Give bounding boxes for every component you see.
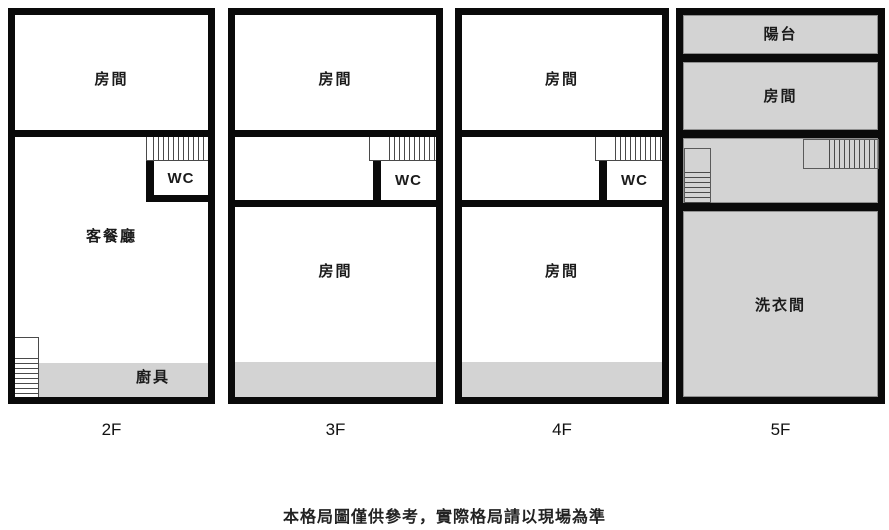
stairs-treads-icon [611,137,662,160]
room-label-bedroom-5f: 房間 [684,87,877,107]
room-label-living-2f: 客餐廳 [15,227,208,247]
room-label-wc-3f: WC [381,161,436,200]
wall-divider-upper-4f [462,130,662,137]
room-label-bedroom-bottom-3f: 房間 [235,262,436,282]
wall-divider-upper-3f [235,130,436,137]
wall-divider-2f [15,130,208,137]
room-label-laundry-5f: 洗衣間 [684,296,877,316]
room-label-balcony-5f: 陽台 [684,25,877,45]
room-label-bedroom-2f: 房間 [15,70,208,90]
stair-hall-5f [683,138,878,203]
wall-bedroom-5f [683,130,878,138]
room-label-bedroom-bottom-4f: 房間 [462,262,662,282]
wall-divider-lower-4f [462,200,662,207]
room-label-bedroom-top-3f: 房間 [235,70,436,90]
wall-stairhall-5f [683,203,878,211]
stairs-hatch-3f [369,137,436,161]
stairs-treads-icon [15,354,38,397]
room-balcony-5f: 陽台 [683,15,878,54]
stairs-treads-icon [149,137,208,160]
floor-label-5f: 5F [676,420,885,440]
room-label-bedroom-top-4f: 房間 [462,70,662,90]
disclaimer-caption: 本格局圖僅供參考，實際格局請以現場為準 [0,503,889,527]
floor-label-3f: 3F [228,420,443,440]
room-label-wc-2f: WC [154,161,208,195]
room-label-wc-4f: WC [607,161,662,200]
wall-wc-left-4f [599,161,607,200]
room-laundry-5f: 洗衣間 [683,211,878,397]
wall-balcony-5f [683,54,878,62]
stairs-hatch-upper-2f [146,137,208,161]
wall-wc-bottom-2f [146,195,208,202]
stairs-treads-icon [825,140,878,168]
floor-plan-sheet: { "caption": "本格局圖僅供參考，實際格局請以現場為準", "col… [0,0,889,530]
floorplan-panel-4f: 房間 WC 房間 [455,8,669,404]
room-bedroom-5f: 房間 [683,62,878,130]
stairs-treads-icon [385,137,436,160]
floor-label-4f: 4F [455,420,669,440]
room-label-kitchen-2f: 廚具 [103,368,203,388]
stairs-box-left-5f [684,148,711,204]
closet-strip-4f [462,362,662,397]
wall-wc-left-3f [373,161,381,200]
floor-label-2f: 2F [8,420,215,440]
floorplan-panel-3f: 房間 WC 房間 [228,8,443,404]
closet-strip-3f [235,362,436,397]
floorplan-panel-5f: 陽台 房間 洗衣間 [676,8,885,404]
stairs-box-lower-2f [15,337,39,397]
stairs-treads-icon [685,168,710,203]
wall-divider-lower-3f [235,200,436,207]
floorplan-panel-2f: 房間 WC 客餐廳 廚具 [8,8,215,404]
stairs-box-right-5f [803,139,879,169]
stairs-hatch-4f [595,137,662,161]
